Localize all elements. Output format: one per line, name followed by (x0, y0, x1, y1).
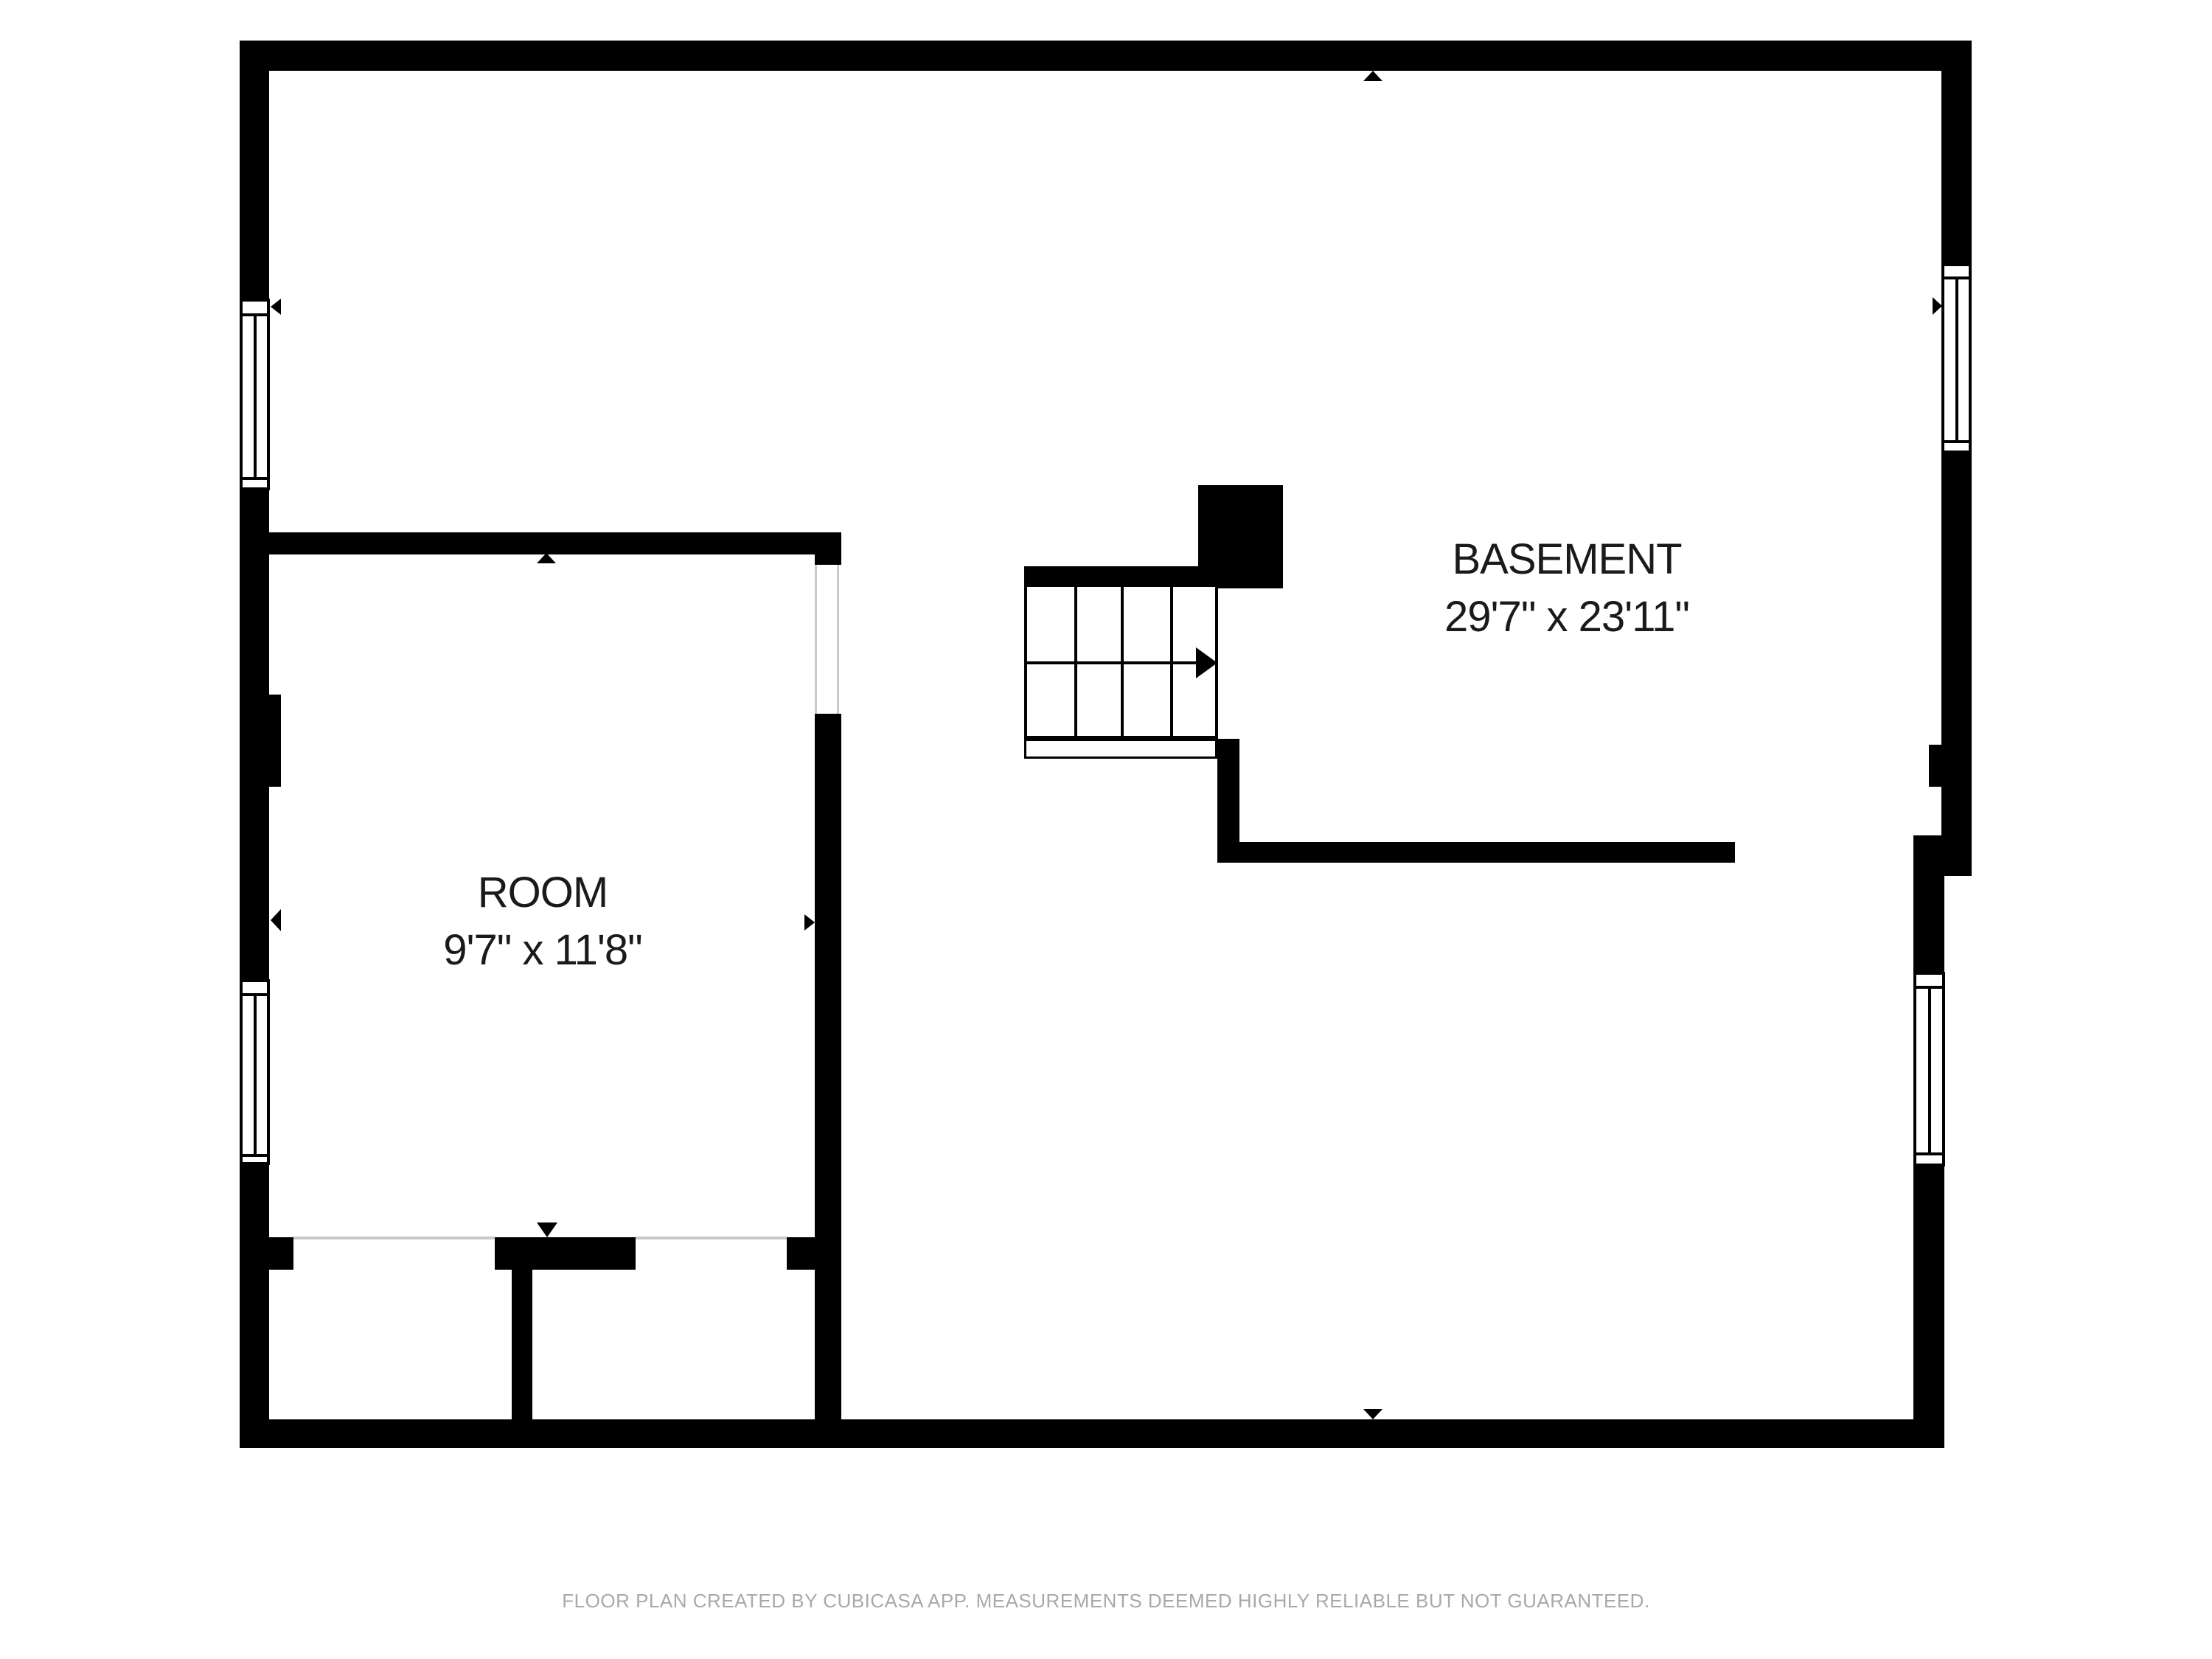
arrow-right-icon (804, 914, 815, 931)
stairs-corner-post (1198, 485, 1283, 588)
room-label: ROOM 9'7" x 11'8" (321, 864, 764, 979)
room-dimensions: 29'7" x 23'11" (1346, 588, 1788, 646)
window-mullion (1928, 986, 1931, 1155)
partition-wall (512, 1270, 532, 1419)
window-right-upper (1941, 263, 1972, 453)
arrow-down-icon (537, 1222, 557, 1237)
room-bottom-wall-right (787, 1237, 841, 1270)
room-right-wall-cap (815, 554, 841, 565)
wall-right-exterior-upper (1941, 41, 1972, 876)
room-name: ROOM (321, 864, 764, 922)
window-mullion (1955, 276, 1958, 443)
window-left-upper (240, 299, 270, 490)
window-right-lower (1913, 972, 1945, 1166)
stairs-direction-arrow-icon (1196, 647, 1217, 678)
wall-top-exterior (240, 41, 1972, 71)
room-dimensions: 9'7" x 11'8" (321, 922, 764, 979)
wall-bottom-exterior (240, 1419, 1944, 1448)
wall-opening-edge-line (815, 565, 817, 714)
arrow-up-icon (537, 553, 556, 563)
wall-opening-edge-line (837, 565, 839, 714)
room-bottom-wall-mid (495, 1237, 636, 1270)
window-mullion (254, 993, 257, 1157)
stairs-direction-line (1024, 661, 1196, 664)
stairs-head-wall (1024, 566, 1198, 587)
wall-right-stub (1929, 745, 1941, 787)
arrow-left-icon (271, 299, 281, 315)
wall-left-exterior (240, 41, 269, 1419)
arrow-right-icon (1933, 297, 1942, 315)
footer-disclaimer: FLOOR PLAN CREATED BY CUBICASA APP. MEAS… (0, 1590, 2212, 1613)
arrow-up-icon (1363, 71, 1382, 81)
room-bottom-wall-left (240, 1237, 293, 1270)
left-wall-pilaster (269, 695, 281, 787)
stairs-landing (1024, 739, 1217, 759)
door-opening-line (636, 1237, 787, 1239)
floor-plan-canvas: BASEMENT 29'7" x 23'11" ROOM 9'7" x 11'8… (0, 0, 2212, 1659)
room-top-wall (240, 532, 841, 554)
door-opening-line (293, 1237, 495, 1239)
window-left-lower (240, 979, 270, 1165)
room-name: BASEMENT (1346, 531, 1788, 588)
basement-lower-wall (1217, 842, 1735, 863)
basement-label: BASEMENT 29'7" x 23'11" (1346, 531, 1788, 646)
stairs-side-wall (1217, 739, 1239, 863)
arrow-left-icon (271, 909, 281, 931)
wall-right-jog (1913, 835, 1972, 876)
window-mullion (254, 313, 257, 480)
room-right-wall (815, 714, 841, 1419)
arrow-down-icon (1363, 1409, 1382, 1419)
